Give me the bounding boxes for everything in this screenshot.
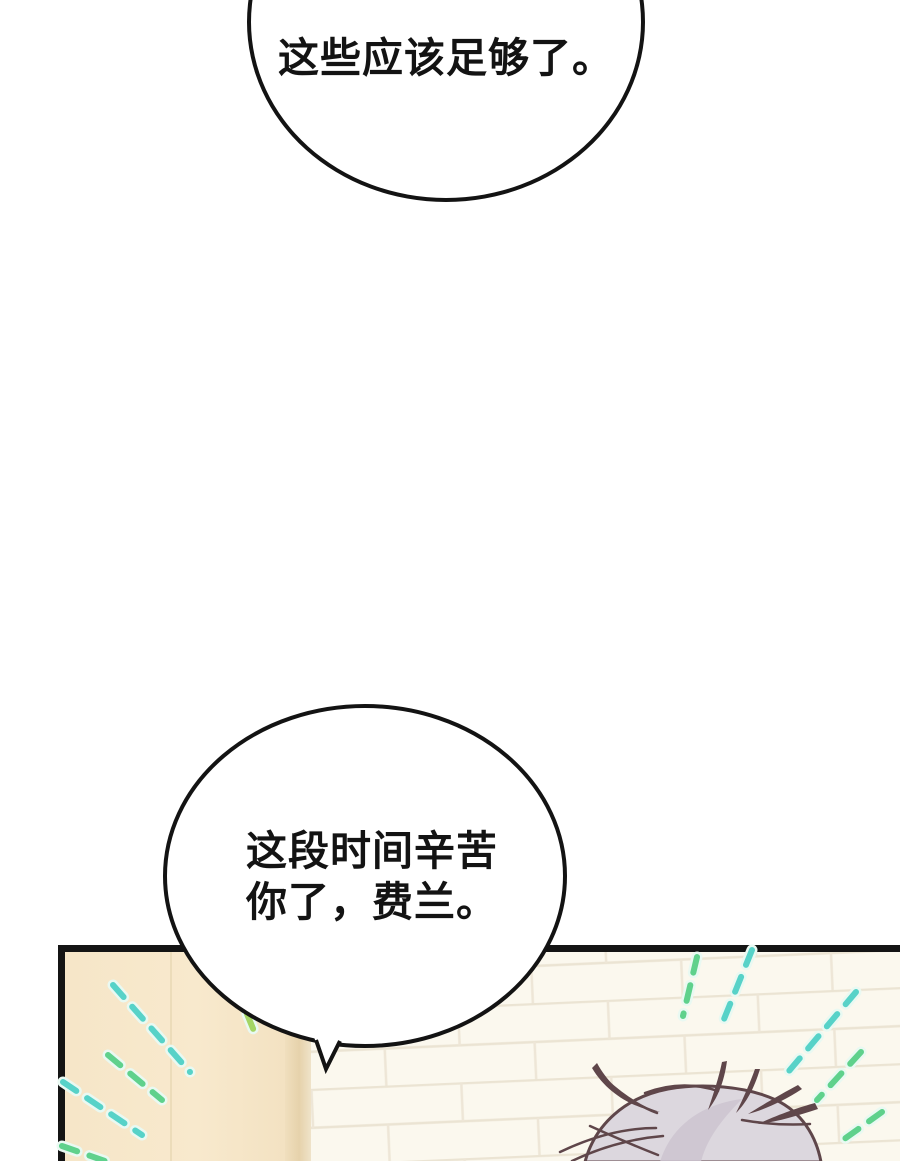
speech-bubble-top: 这些应该足够了。	[247, 0, 645, 202]
comic-page: 这些应该足够了。 这段时间辛苦 你了，费兰。	[0, 0, 900, 1161]
speech-bubble-bottom-line-2: 你了，费兰。	[246, 877, 496, 928]
speech-bubble-bottom-line-1: 这段时间辛苦	[246, 826, 496, 877]
speech-bubble-top-text: 这些应该足够了。	[251, 24, 641, 84]
speech-bubble-bottom-text: 这段时间辛苦 你了，费兰。	[246, 826, 496, 928]
